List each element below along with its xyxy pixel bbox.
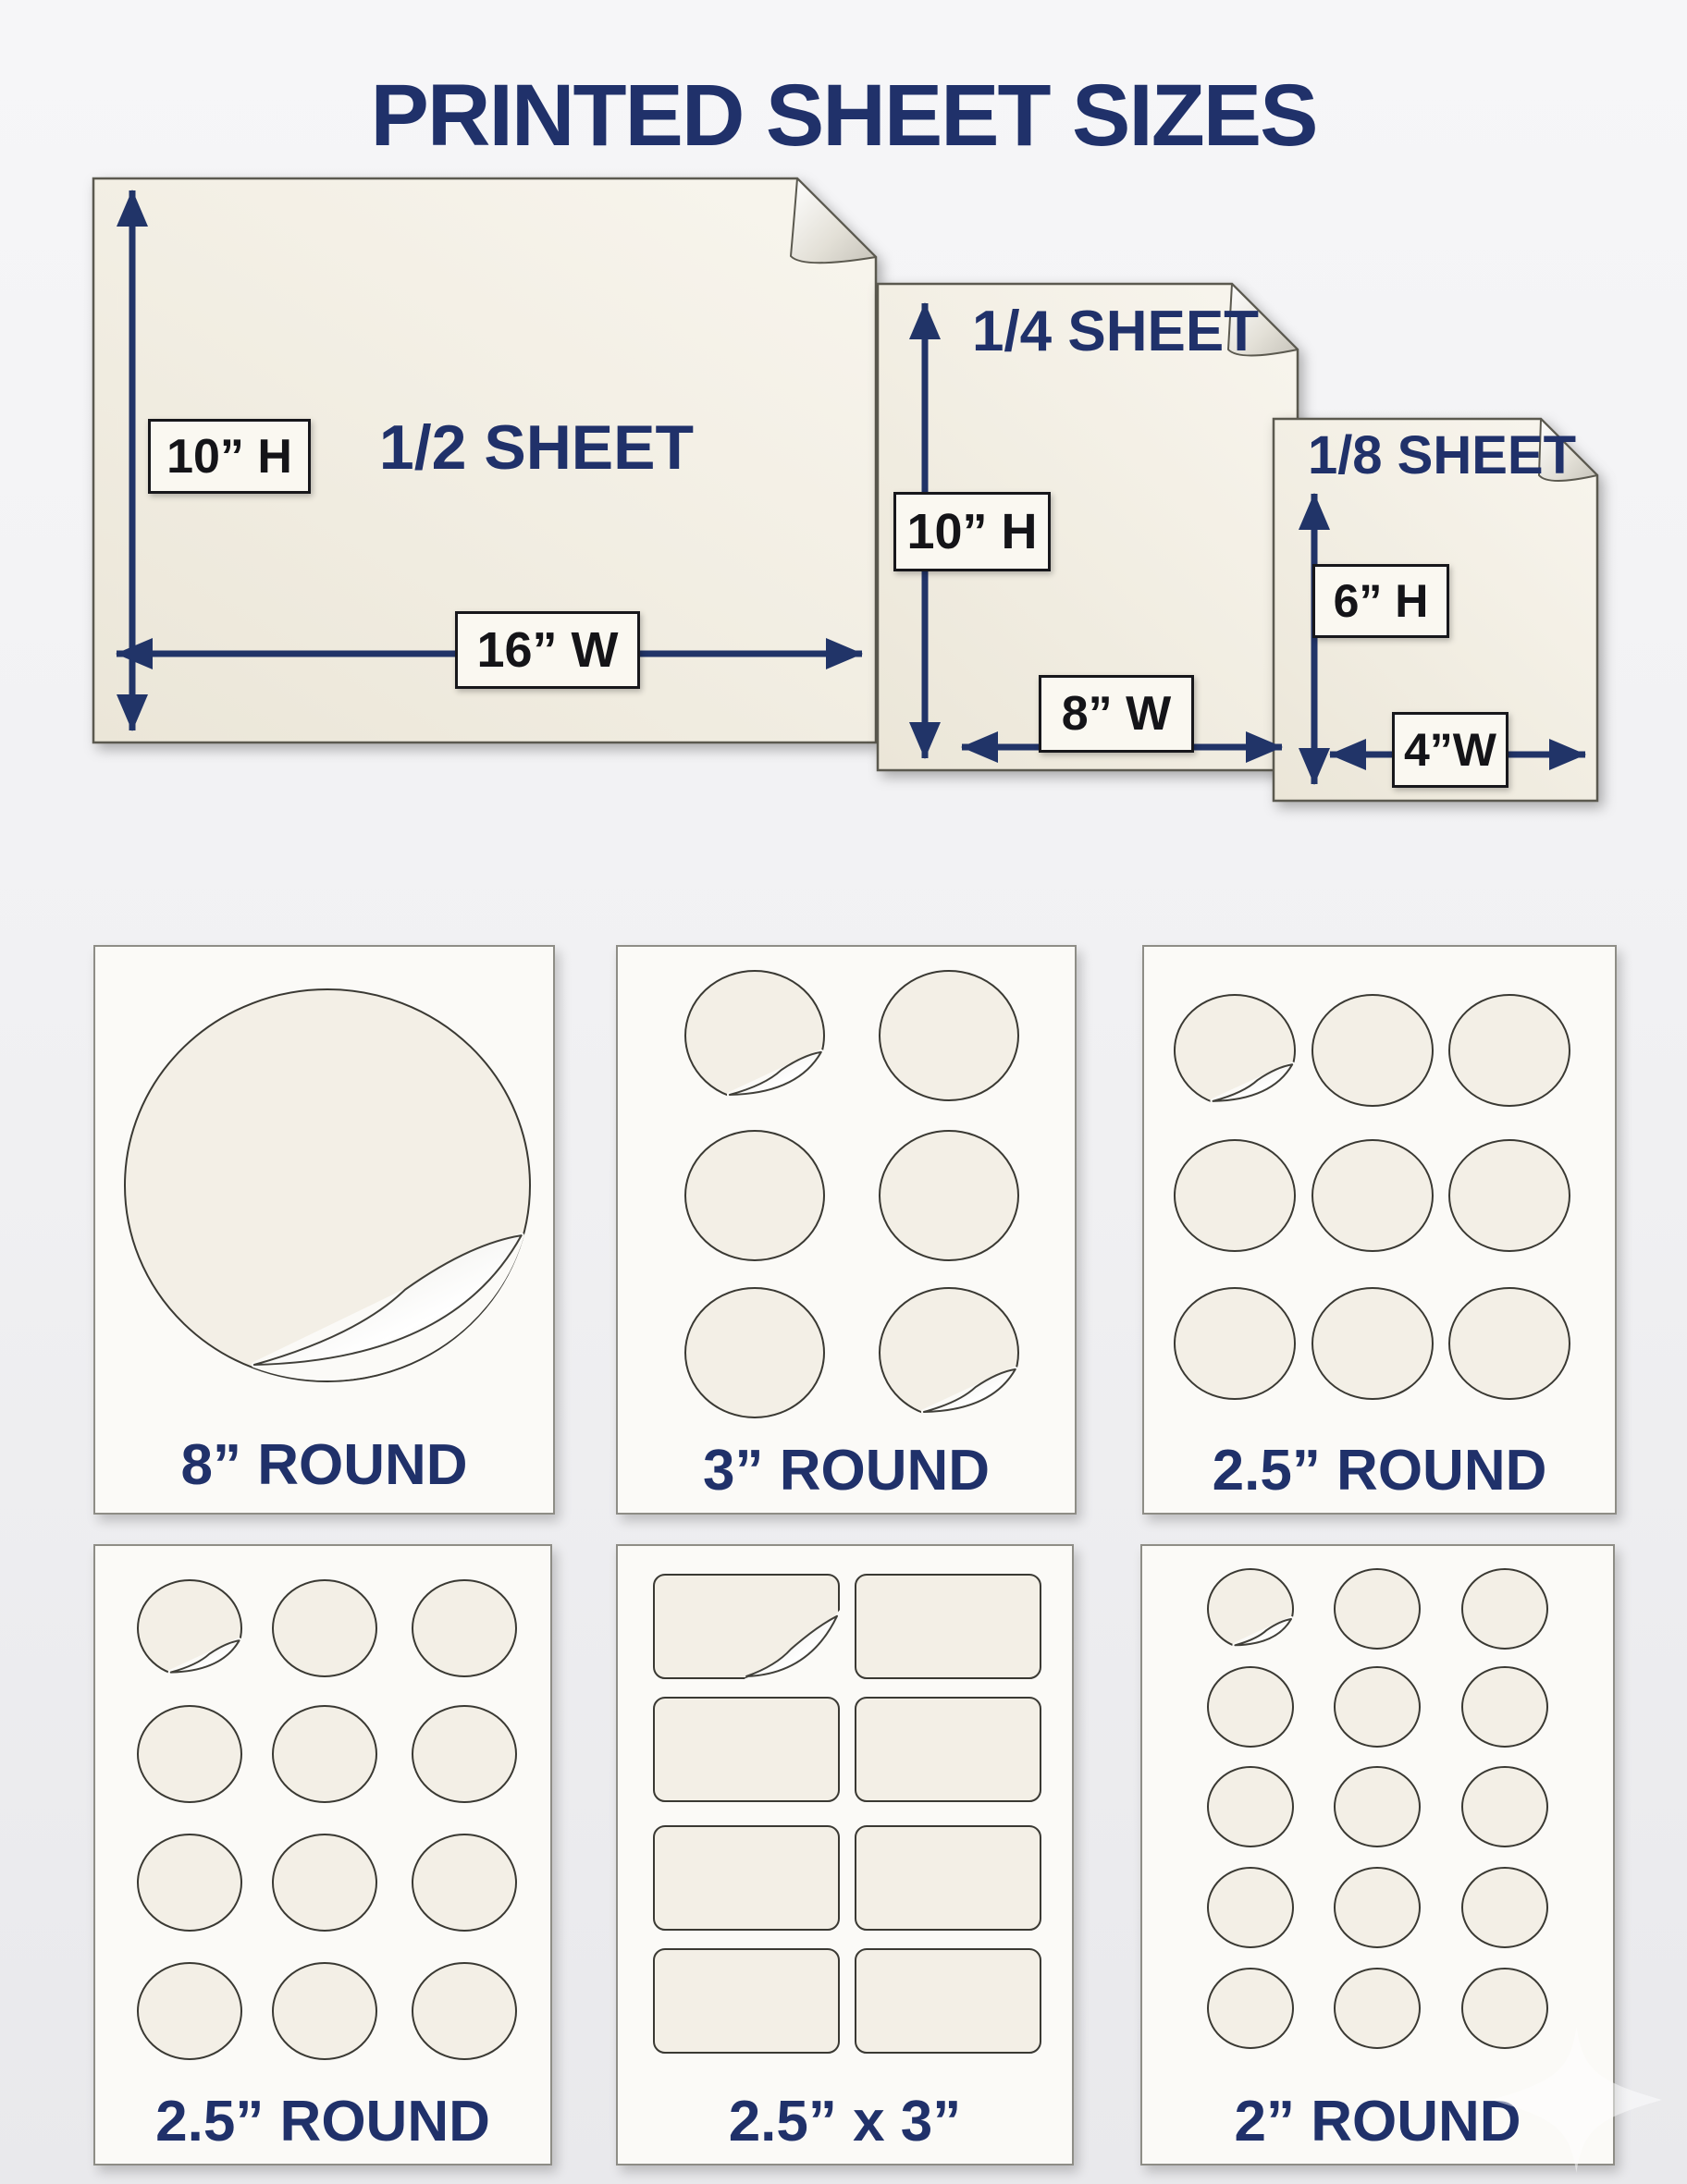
sticker-rect: [654, 1949, 839, 2053]
sticker-circle: [413, 1963, 516, 2059]
sticker-circle: [880, 1288, 1018, 1417]
sticker-grid: [1142, 1546, 1613, 2164]
sticker-circle: [1462, 1667, 1547, 1747]
sticker-grid: [618, 1546, 1072, 2164]
sticker-sheet-art: [95, 947, 553, 1513]
sticker-circle: [1175, 1288, 1295, 1399]
sticker-circle: [1462, 1969, 1547, 2048]
sticker-circle: [1208, 1569, 1293, 1649]
half-width-label: 16” W: [455, 611, 640, 689]
sticker-circle: [1449, 995, 1570, 1106]
sticker-circle: [1175, 995, 1295, 1106]
panel-label: 8” ROUND: [95, 1437, 553, 1494]
sticker-circle: [685, 971, 824, 1100]
page-title: PRINTED SHEET SIZES: [0, 72, 1687, 160]
panel-2-5x3-rect: 2.5” x 3”: [616, 1544, 1074, 2166]
sticker-circle: [1175, 1140, 1295, 1251]
sticker-rect: [654, 1698, 839, 1801]
sticker-circle: [413, 1580, 516, 1676]
sticker-circle: [1335, 1969, 1420, 2048]
sticker-circle: [138, 1834, 241, 1931]
sticker-circle: [1462, 1767, 1547, 1847]
panel-label: 2” ROUND: [1142, 2093, 1613, 2151]
eighth-width-label: 4”W: [1392, 712, 1508, 788]
quarter-height-label: 10” H: [893, 492, 1051, 571]
sticker-rect: [856, 1575, 1041, 1678]
sticker-circle: [125, 989, 530, 1381]
eighth-height-label: 6” H: [1312, 564, 1449, 638]
panel-3in-round: 3” ROUND: [616, 945, 1077, 1515]
sticker-circle: [1449, 1140, 1570, 1251]
sticker-circle: [1335, 1868, 1420, 1947]
half-height-label: 10” H: [148, 419, 311, 494]
sticker-circle: [685, 1131, 824, 1260]
sticker-sheet-art: [1144, 947, 1615, 1513]
sticker-circle: [1312, 1288, 1433, 1399]
quarter-width-label: 8” W: [1039, 675, 1194, 753]
panel-label: 2.5” ROUND: [1144, 1442, 1615, 1500]
sticker-rect: [654, 1826, 839, 1930]
sticker-sheet-art: [618, 947, 1075, 1513]
sticker-circle: [1208, 1767, 1293, 1847]
sticker-grid: [1144, 947, 1615, 1513]
half-sheet-name: 1/2 SHEET: [314, 416, 758, 479]
sticker-circle: [413, 1834, 516, 1931]
sticker-rect: [856, 1698, 1041, 1801]
sticker-circle: [880, 1131, 1018, 1260]
sticker-sheet-art: [95, 1546, 550, 2164]
panel-label: 3” ROUND: [618, 1442, 1075, 1500]
panel-8in-round: 8” ROUND: [93, 945, 555, 1515]
sticker-circle: [880, 971, 1018, 1100]
sticker-grid: [618, 947, 1075, 1513]
panel-2in-round: 2” ROUND: [1140, 1544, 1615, 2166]
panel-2-5in-round-12: 2.5” ROUND: [93, 1544, 552, 2166]
sticker-circle: [1312, 1140, 1433, 1251]
sticker-circle: [1335, 1767, 1420, 1847]
panel-label: 2.5” x 3”: [618, 2093, 1072, 2151]
sticker-circle: [273, 1963, 376, 2059]
sticker-circle: [1208, 1667, 1293, 1747]
sticker-circle: [685, 1288, 824, 1417]
sticker-grid: [95, 1546, 550, 2164]
sticker-rect: [856, 1826, 1041, 1930]
folded-corner-icon: [791, 178, 876, 263]
sticker-circle: [273, 1834, 376, 1931]
sticker-circle: [1312, 995, 1433, 1106]
sticker-circle: [413, 1706, 516, 1802]
sticker-circle: [1208, 1969, 1293, 2048]
sticker-circle: [1335, 1569, 1420, 1649]
sticker-sheet-art: [618, 1546, 1072, 2164]
sticker-circle: [1449, 1288, 1570, 1399]
printed-sheet-sizes-infographic: PRINTED SHEET SIZES 1/2 SHEET 1/4 SHEET …: [0, 0, 1687, 2184]
quarter-sheet-name: 1/4 SHEET: [932, 303, 1299, 361]
sticker-circle: [1462, 1569, 1547, 1649]
eighth-sheet-name: 1/8 SHEET: [1289, 429, 1595, 483]
sticker-circle: [1335, 1667, 1420, 1747]
sticker-rect: [654, 1575, 842, 1681]
sticker-circle: [138, 1963, 241, 2059]
panel-label: 2.5” ROUND: [95, 2093, 550, 2151]
sticker-circle: [1462, 1868, 1547, 1947]
sticker-circle: [138, 1706, 241, 1802]
sticker-sheet-art: [1142, 1546, 1613, 2164]
sticker-circle: [273, 1706, 376, 1802]
sticker-circle: [138, 1580, 241, 1676]
sticker-circle: [273, 1580, 376, 1676]
sticker-grid: [95, 947, 553, 1513]
sticker-rect: [856, 1949, 1041, 2053]
sticker-circle: [1208, 1868, 1293, 1947]
panel-2-5in-round-9: 2.5” ROUND: [1142, 945, 1617, 1515]
